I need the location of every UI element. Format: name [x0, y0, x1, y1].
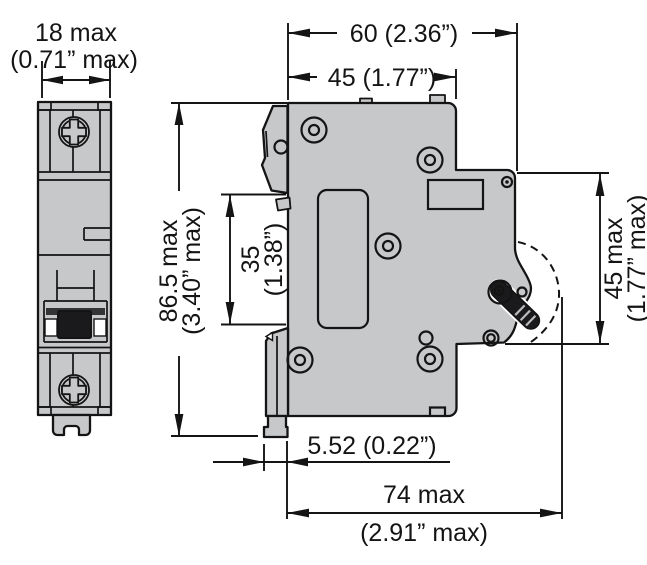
rail-recess-tab	[276, 198, 291, 211]
toggle-switch-front	[58, 311, 91, 338]
top-tab	[430, 95, 445, 103]
dim-label: (1.77” max)	[623, 195, 647, 323]
din-foot-front	[53, 415, 90, 435]
dim-clip-offset: 5.52 (0.22”)	[213, 432, 450, 471]
terminal-screw-top	[59, 117, 89, 147]
dim-label: 5.52 (0.22”)	[307, 432, 436, 460]
dim-label: 60 (2.36”)	[350, 20, 458, 48]
terminal-screw-bottom	[59, 375, 89, 405]
dim-label: 45 (1.77”)	[328, 64, 436, 92]
front-view	[38, 102, 111, 435]
toggle-guide-right	[94, 319, 106, 336]
dim-rail-recess: 35 (1.38”)	[221, 195, 288, 325]
dim-label: 74 max	[383, 481, 465, 509]
dim-depth-upper: 45 (1.77”)	[288, 64, 456, 99]
dim-label: (0.71” max)	[10, 46, 138, 74]
breaker-side-body	[288, 103, 531, 416]
mcb-dimension-drawing: 18 max (0.71” max) 60 (2.36”) 45 (1.77”)…	[0, 0, 647, 565]
toggle-guide-left	[45, 319, 57, 336]
dim-label: 18 max	[35, 19, 117, 47]
dim-label: (2.91” max)	[360, 519, 488, 547]
drawing-canvas: 18 max (0.71” max) 60 (2.36”) 45 (1.77”)…	[0, 0, 647, 565]
dim-label: (1.38”)	[260, 223, 288, 297]
dim-label: (3.40” max)	[178, 207, 206, 335]
din-clip-foot	[264, 416, 288, 437]
dim-front-width: 18 max (0.71” max)	[10, 19, 138, 98]
side-view	[262, 95, 559, 437]
